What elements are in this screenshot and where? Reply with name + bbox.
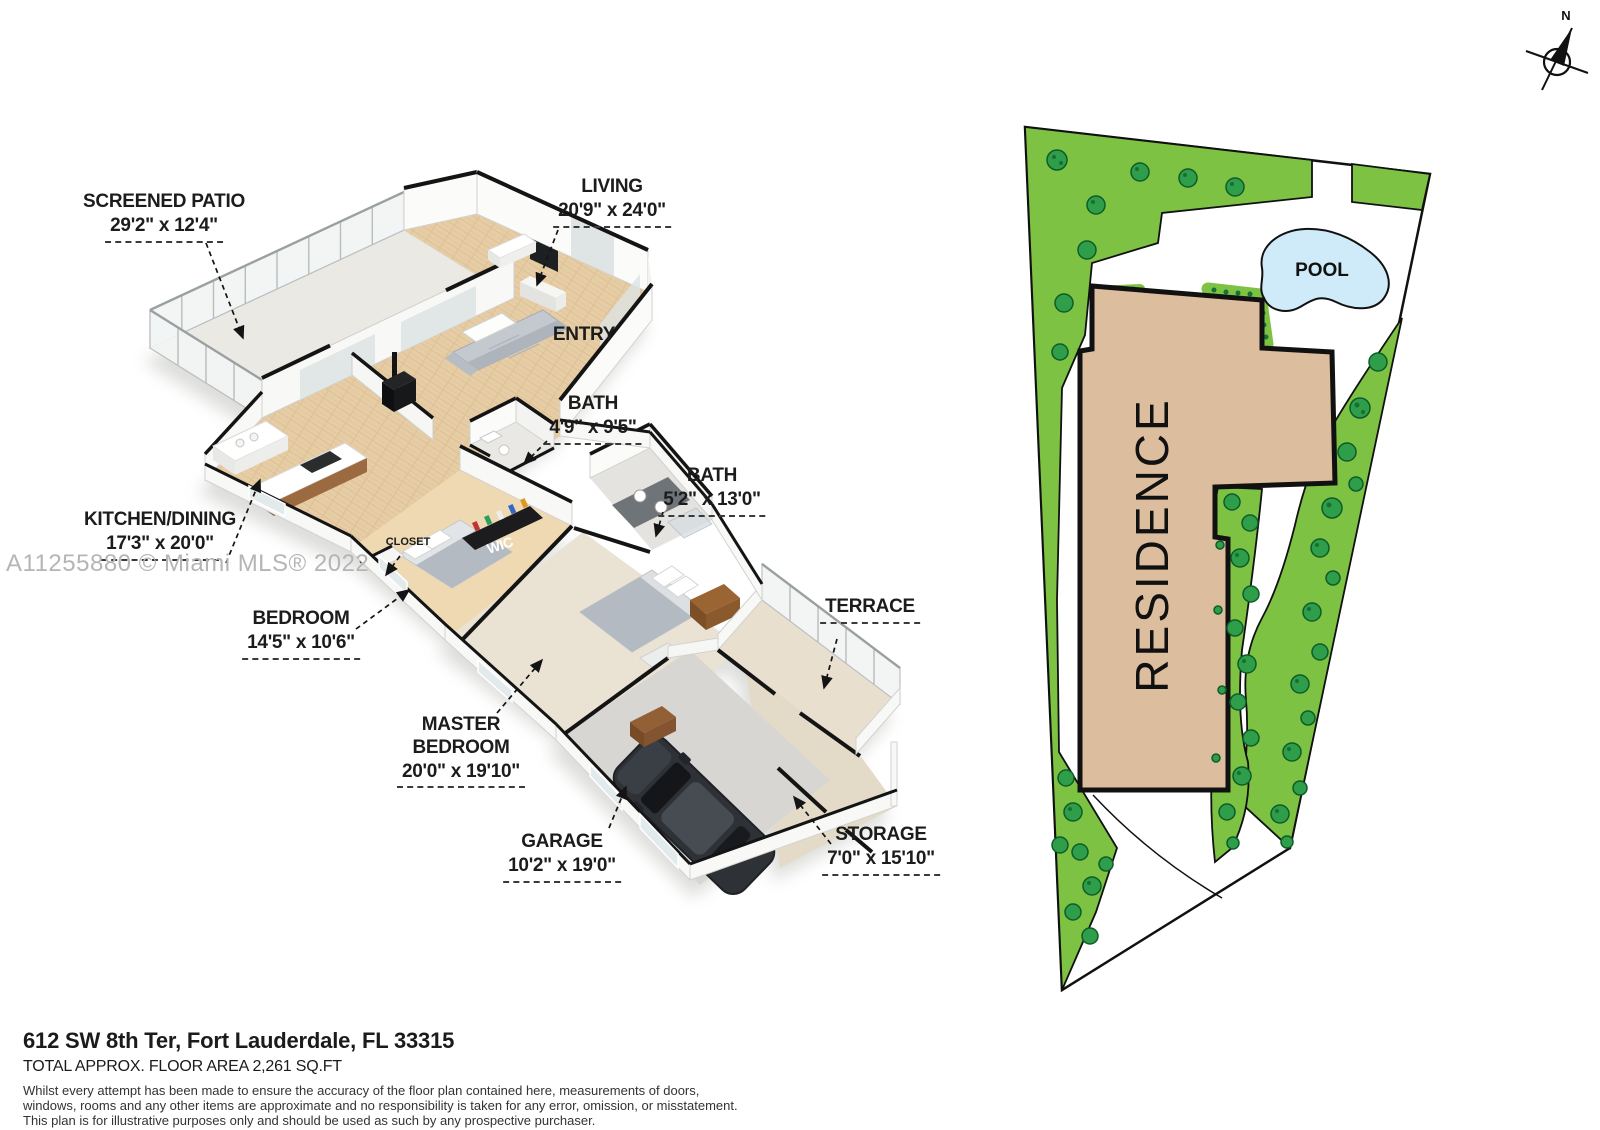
floorplan-page: SCREENED PATIO 29'2" x 12'4" LIVING 20'9… [0,0,1600,1130]
footer: 612 SW 8th Ter, Fort Lauderdale, FL 3331… [23,1028,738,1128]
disclaimer: Whilst every attempt has been made to en… [23,1083,738,1128]
disclaimer-line: Whilst every attempt has been made to en… [23,1083,738,1098]
disclaimer-line: This plan is for illustrative purposes o… [23,1113,738,1128]
floor-plan-canvas [0,0,1600,1130]
floor-area-total: TOTAL APPROX. FLOOR AREA 2,261 SQ.FT [23,1058,738,1076]
compass-icon [1526,28,1588,90]
floor-plan-3d [143,172,900,903]
disclaimer-line: windows, rooms and any other items are a… [23,1098,738,1113]
property-address: 612 SW 8th Ter, Fort Lauderdale, FL 3331… [23,1028,738,1054]
site-plan [1025,127,1430,990]
lawn-top-right [1352,164,1430,210]
